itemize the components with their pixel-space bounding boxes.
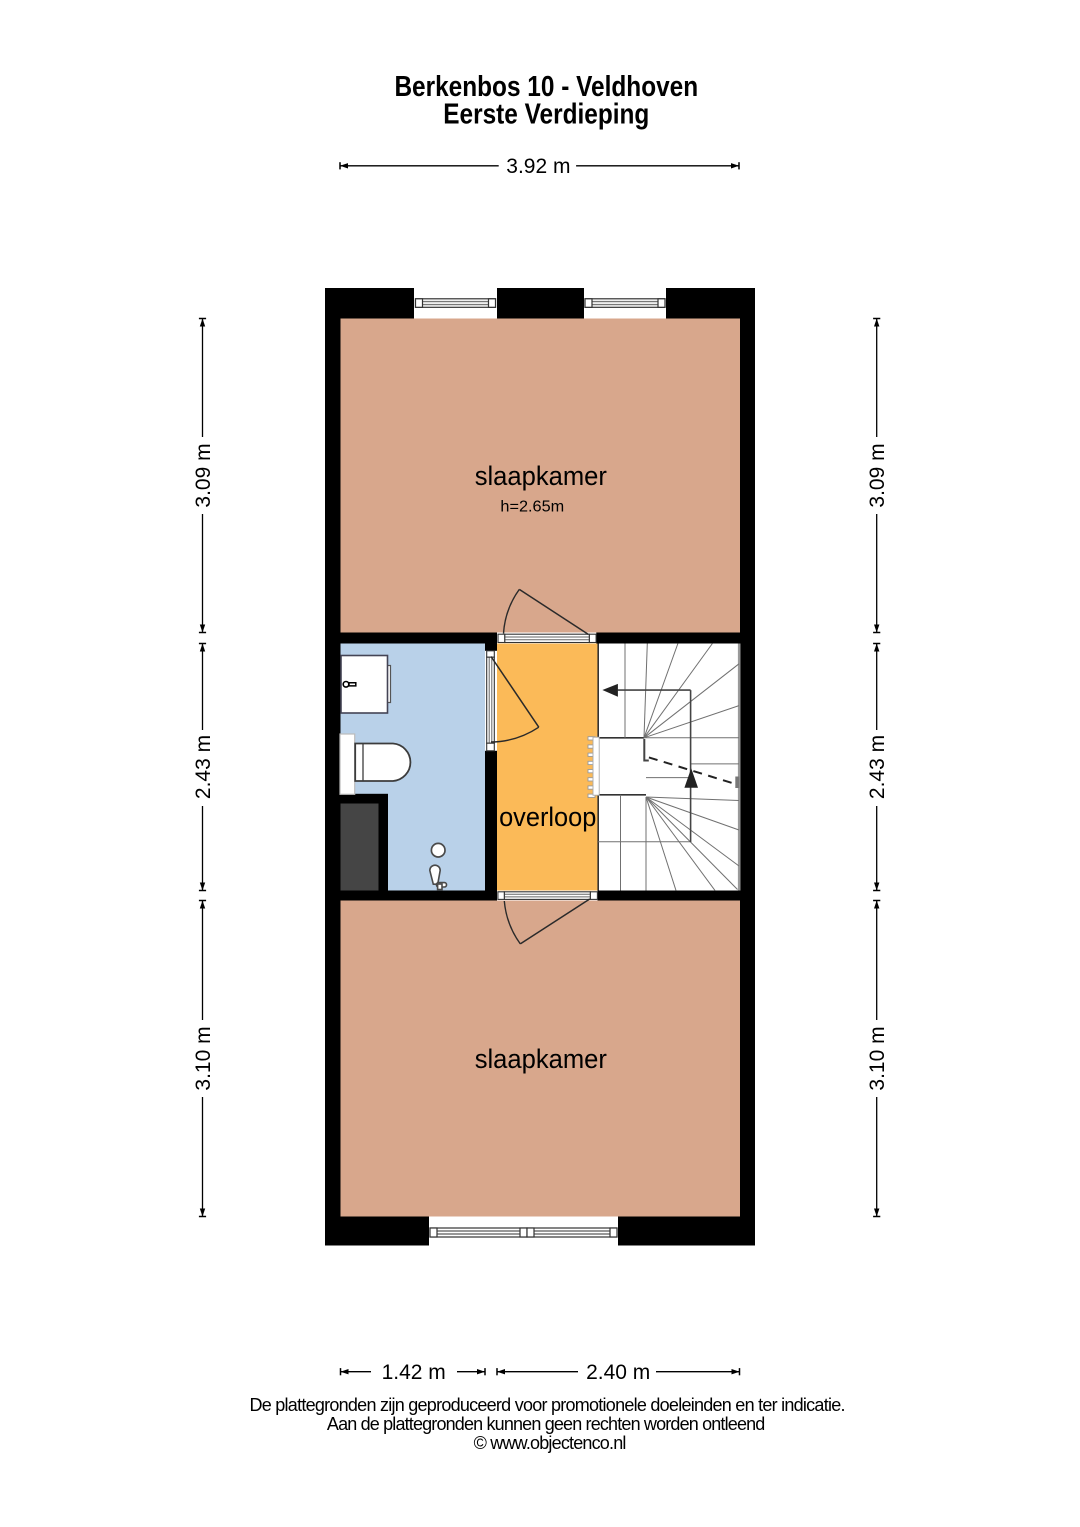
svg-text:h=2.65m: h=2.65m bbox=[500, 498, 564, 515]
svg-text:3.09 m: 3.09 m bbox=[866, 443, 889, 507]
svg-text:overloop: overloop bbox=[499, 802, 596, 832]
svg-text:slaapkamer: slaapkamer bbox=[475, 1044, 607, 1074]
svg-text:De plattegronden zijn geproduc: De plattegronden zijn geproduceerd voor … bbox=[250, 1395, 846, 1415]
svg-text:3.10 m: 3.10 m bbox=[866, 1026, 889, 1090]
svg-text:2.43 m: 2.43 m bbox=[192, 735, 215, 799]
svg-text:3.09 m: 3.09 m bbox=[192, 443, 215, 507]
svg-text:© www.objectenco.nl: © www.objectenco.nl bbox=[474, 1433, 627, 1453]
svg-text:slaapkamer: slaapkamer bbox=[475, 461, 607, 491]
svg-text:Eerste Verdieping: Eerste Verdieping bbox=[443, 99, 649, 131]
svg-text:2.40 m: 2.40 m bbox=[586, 1361, 650, 1384]
svg-text:1.42 m: 1.42 m bbox=[382, 1361, 446, 1384]
svg-text:3.92 m: 3.92 m bbox=[506, 155, 570, 178]
svg-text:Aan de plattegronden kunnen ge: Aan de plattegronden kunnen geen rechten… bbox=[327, 1414, 765, 1434]
svg-text:3.10 m: 3.10 m bbox=[192, 1026, 215, 1090]
svg-text:2.43 m: 2.43 m bbox=[866, 735, 889, 799]
